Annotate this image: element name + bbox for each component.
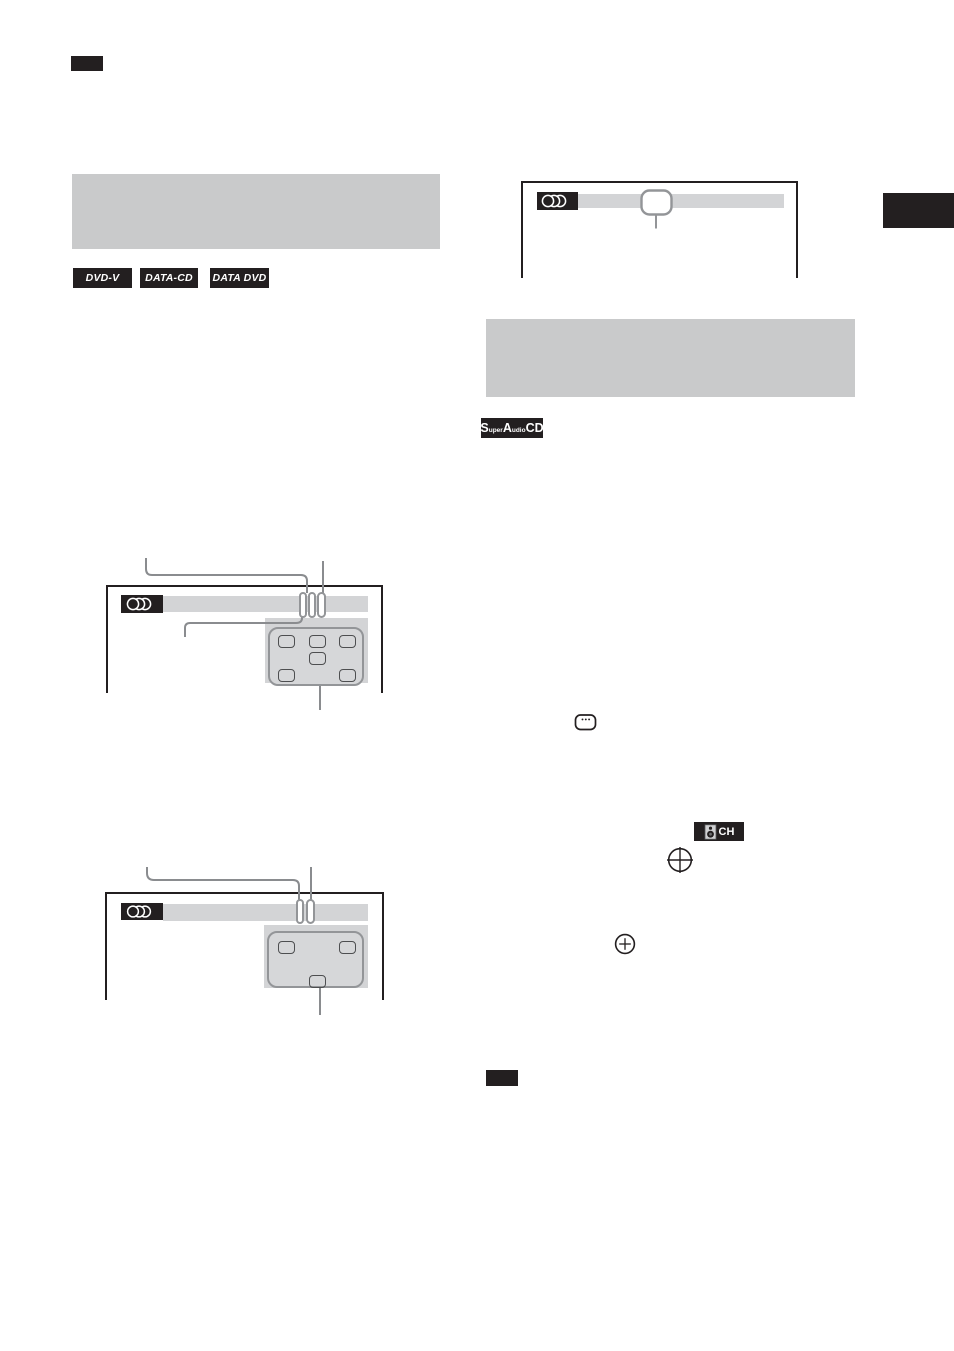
disc-format-badge-data-dvd: DATA DVD: [210, 268, 269, 288]
subtitle-button-icon: [574, 712, 598, 732]
multi-channel-label: CH: [719, 826, 735, 838]
sacd-text: S: [480, 421, 488, 435]
remote-button-icon: [309, 975, 326, 988]
enter-button-icon: [665, 845, 695, 875]
callout-line: [147, 867, 299, 900]
multi-channel-badge: CH: [694, 822, 744, 841]
note-badge: [486, 1070, 518, 1086]
pill-highlight-icon: [296, 899, 304, 924]
pill-highlight-icon: [308, 592, 316, 618]
note-badge: [71, 56, 103, 71]
manual-page: DVD-V DATA-CD DATA DVD SuperAudioCD: [0, 0, 954, 1351]
pill-highlight-icon: [317, 592, 326, 618]
sacd-text: A: [503, 421, 512, 435]
pill-highlight-icon: [306, 899, 315, 924]
remote-button-icon: [278, 635, 295, 648]
section-heading-panel-left: [72, 174, 440, 249]
remote-button-icon: [278, 669, 295, 682]
sacd-text: udio: [512, 424, 526, 438]
remote-button-icon: [339, 941, 356, 954]
sacd-text: CD: [526, 421, 544, 435]
pill-highlight-icon: [299, 592, 307, 618]
speaker-icon: [704, 824, 717, 840]
callout-line: [146, 558, 307, 593]
disc-format-badge-dvd-v: DVD-V: [73, 268, 132, 288]
remote-button-icon: [309, 652, 326, 665]
sacd-text: uper: [489, 424, 503, 438]
remote-panel: [268, 627, 364, 686]
menu-highlight-overlay: [630, 184, 686, 236]
multi-disc-badge: [537, 192, 578, 210]
section-heading-panel-right: [486, 319, 855, 397]
highlight-box-icon: [642, 191, 672, 215]
disc-format-badge-data-cd: DATA-CD: [140, 268, 198, 288]
remote-button-icon: [339, 635, 356, 648]
remote-button-icon: [278, 941, 295, 954]
enter-button-icon: [614, 933, 636, 955]
multi-disc-icon: [537, 192, 578, 210]
page-edge-tab: [883, 193, 954, 228]
remote-button-icon: [309, 635, 326, 648]
remote-panel: [267, 931, 364, 988]
remote-button-icon: [339, 669, 356, 682]
super-audio-cd-badge: SuperAudioCD: [481, 418, 543, 438]
